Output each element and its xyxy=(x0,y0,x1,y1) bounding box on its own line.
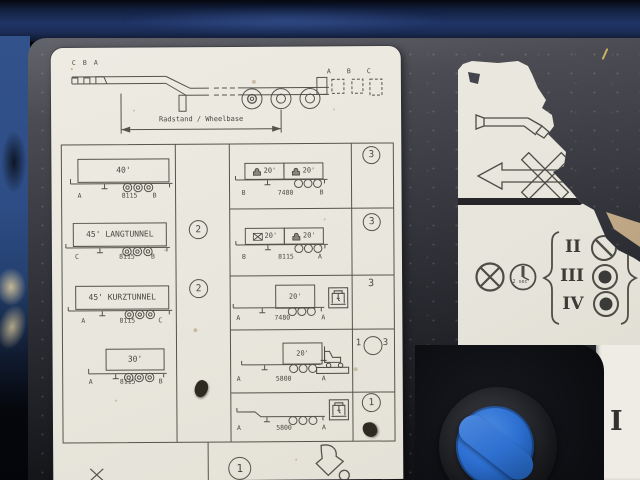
count-circle: 2 xyxy=(189,220,208,239)
end-code: B xyxy=(159,378,163,385)
table-grid xyxy=(61,143,395,480)
count-circle: 1 xyxy=(362,393,381,412)
container-size-label: 20' xyxy=(303,232,316,239)
chassis-side-view xyxy=(72,75,382,112)
dirt-flecks xyxy=(71,68,73,70)
container-size-label: 40' xyxy=(116,167,131,175)
vehicle-body-left xyxy=(0,36,30,480)
wheelbase-value: 8115 xyxy=(120,379,136,386)
end-code: A xyxy=(322,375,326,382)
container-box: 20' xyxy=(283,162,323,179)
filled-circle-icon xyxy=(594,292,618,316)
wheelbase-dimension xyxy=(121,93,281,134)
position-numeral: III xyxy=(560,268,584,285)
count-circle: 2 xyxy=(189,279,208,298)
position-numeral: IV xyxy=(562,296,583,313)
end-code: B xyxy=(151,253,155,260)
count-value: 2 xyxy=(195,225,201,235)
weight-icon xyxy=(292,167,301,175)
timer-text: 2 sec xyxy=(512,279,527,285)
wheelbase-value: 8115 xyxy=(119,254,135,261)
end-code: A xyxy=(237,425,241,432)
operation-sticker: 2 sec II III IV xyxy=(458,60,640,345)
weight-icon xyxy=(253,167,262,175)
container-box: 45' KURZTUNNEL xyxy=(75,285,169,310)
count-value: 2 xyxy=(196,284,202,294)
photo-of-chassis-panel: I xyxy=(0,0,640,480)
torn-notch xyxy=(468,72,480,84)
end-code: A xyxy=(237,376,241,383)
wheelbase-value: 7480 xyxy=(274,315,290,322)
count-value: 3 xyxy=(369,217,375,227)
side-label-marking: I xyxy=(610,406,623,437)
weight-icon xyxy=(292,232,301,240)
shadow-patch xyxy=(2,132,26,192)
end-code: A xyxy=(89,379,93,386)
count-circle: 1 xyxy=(228,457,251,480)
worn-paint-mark xyxy=(0,268,26,306)
configuration-sticker: C B A A B C Radstand / Wheelbase 40' 45'… xyxy=(51,46,404,480)
end-code: B xyxy=(242,254,246,261)
count-circle xyxy=(363,336,382,355)
count-value: 1 xyxy=(356,338,361,348)
count-value: 3 xyxy=(368,278,374,289)
end-code: A xyxy=(321,314,325,321)
line-art xyxy=(51,46,404,480)
container-size-label: 30' xyxy=(128,356,143,364)
container-box: 45' LANGTUNNEL xyxy=(73,222,167,247)
gantry-crane-icon xyxy=(329,288,348,308)
container-size-label: 20' xyxy=(264,233,277,240)
container-box: 40' xyxy=(77,158,169,183)
end-code: A xyxy=(318,253,322,260)
container-size-label: 20' xyxy=(296,350,309,357)
end-code: B xyxy=(320,189,324,196)
section-divider xyxy=(458,198,588,205)
position-numeral: II xyxy=(565,239,581,256)
worn-paint-mark xyxy=(0,301,31,353)
vehicle-body-highlight xyxy=(120,8,450,34)
empty-box-icon xyxy=(252,232,262,240)
end-code: A xyxy=(81,318,85,325)
wheelbase-value: 5800 xyxy=(276,425,292,432)
end-code: A xyxy=(236,315,240,322)
container-size-label: 45' LANGTUNNEL xyxy=(86,230,153,238)
container-box: 20' xyxy=(284,227,324,244)
end-code: A xyxy=(78,193,82,200)
container-size-label: 20' xyxy=(303,167,316,174)
fitting-code: A xyxy=(327,68,331,75)
container-box: 20' xyxy=(282,342,322,364)
gantry-crane-icon xyxy=(329,400,348,420)
end-code: B xyxy=(242,190,246,197)
fitting-code: B xyxy=(83,60,87,67)
end-code: C xyxy=(75,254,79,261)
container-size-label: 20' xyxy=(264,168,277,175)
end-code: B xyxy=(153,192,157,199)
wheelbase-value: 5800 xyxy=(276,376,292,383)
count-circle: 3 xyxy=(363,213,381,231)
operation-art xyxy=(458,60,640,345)
count-value: 1 xyxy=(236,463,243,474)
cross-mark xyxy=(90,469,103,480)
count-value: 3 xyxy=(368,150,374,160)
container-size-label: 45' KURZTUNNEL xyxy=(88,293,155,301)
container-box: 20' xyxy=(275,284,315,308)
brace-left xyxy=(544,232,559,324)
container-box: 20' xyxy=(244,163,284,180)
wrench-icon xyxy=(476,115,549,138)
wheelbase-caption: Radstand / Wheelbase xyxy=(159,116,243,124)
hook-arrow-icon xyxy=(316,445,349,480)
fitting-code: C xyxy=(367,68,371,75)
end-code: A xyxy=(322,424,326,431)
end-code: C xyxy=(158,317,162,324)
no-lift-icon xyxy=(477,264,504,291)
count-circle: 3 xyxy=(362,146,380,164)
slash-circle-icon xyxy=(592,236,616,260)
brace-right xyxy=(621,232,636,324)
wheelbase-value: 8115 xyxy=(278,254,294,261)
fitting-code: A xyxy=(94,60,98,67)
count-value: 1 xyxy=(368,398,374,408)
crossed-arrow-icon xyxy=(478,153,570,200)
count-value: 3 xyxy=(383,338,388,348)
container-box: 20' xyxy=(245,228,285,245)
wheelbase-value: 7480 xyxy=(278,190,294,197)
wheelbase-value: 8115 xyxy=(120,318,136,325)
fitting-code: C xyxy=(72,60,76,67)
fitting-code: B xyxy=(347,68,351,75)
timer-icon xyxy=(511,265,536,290)
container-box: 30' xyxy=(106,348,165,370)
filled-circle-icon xyxy=(593,265,617,289)
wheelbase-value: 8115 xyxy=(122,193,138,200)
container-size-label: 20' xyxy=(289,293,302,300)
operation-sticker-wrap: 2 sec II III IV xyxy=(458,60,640,345)
